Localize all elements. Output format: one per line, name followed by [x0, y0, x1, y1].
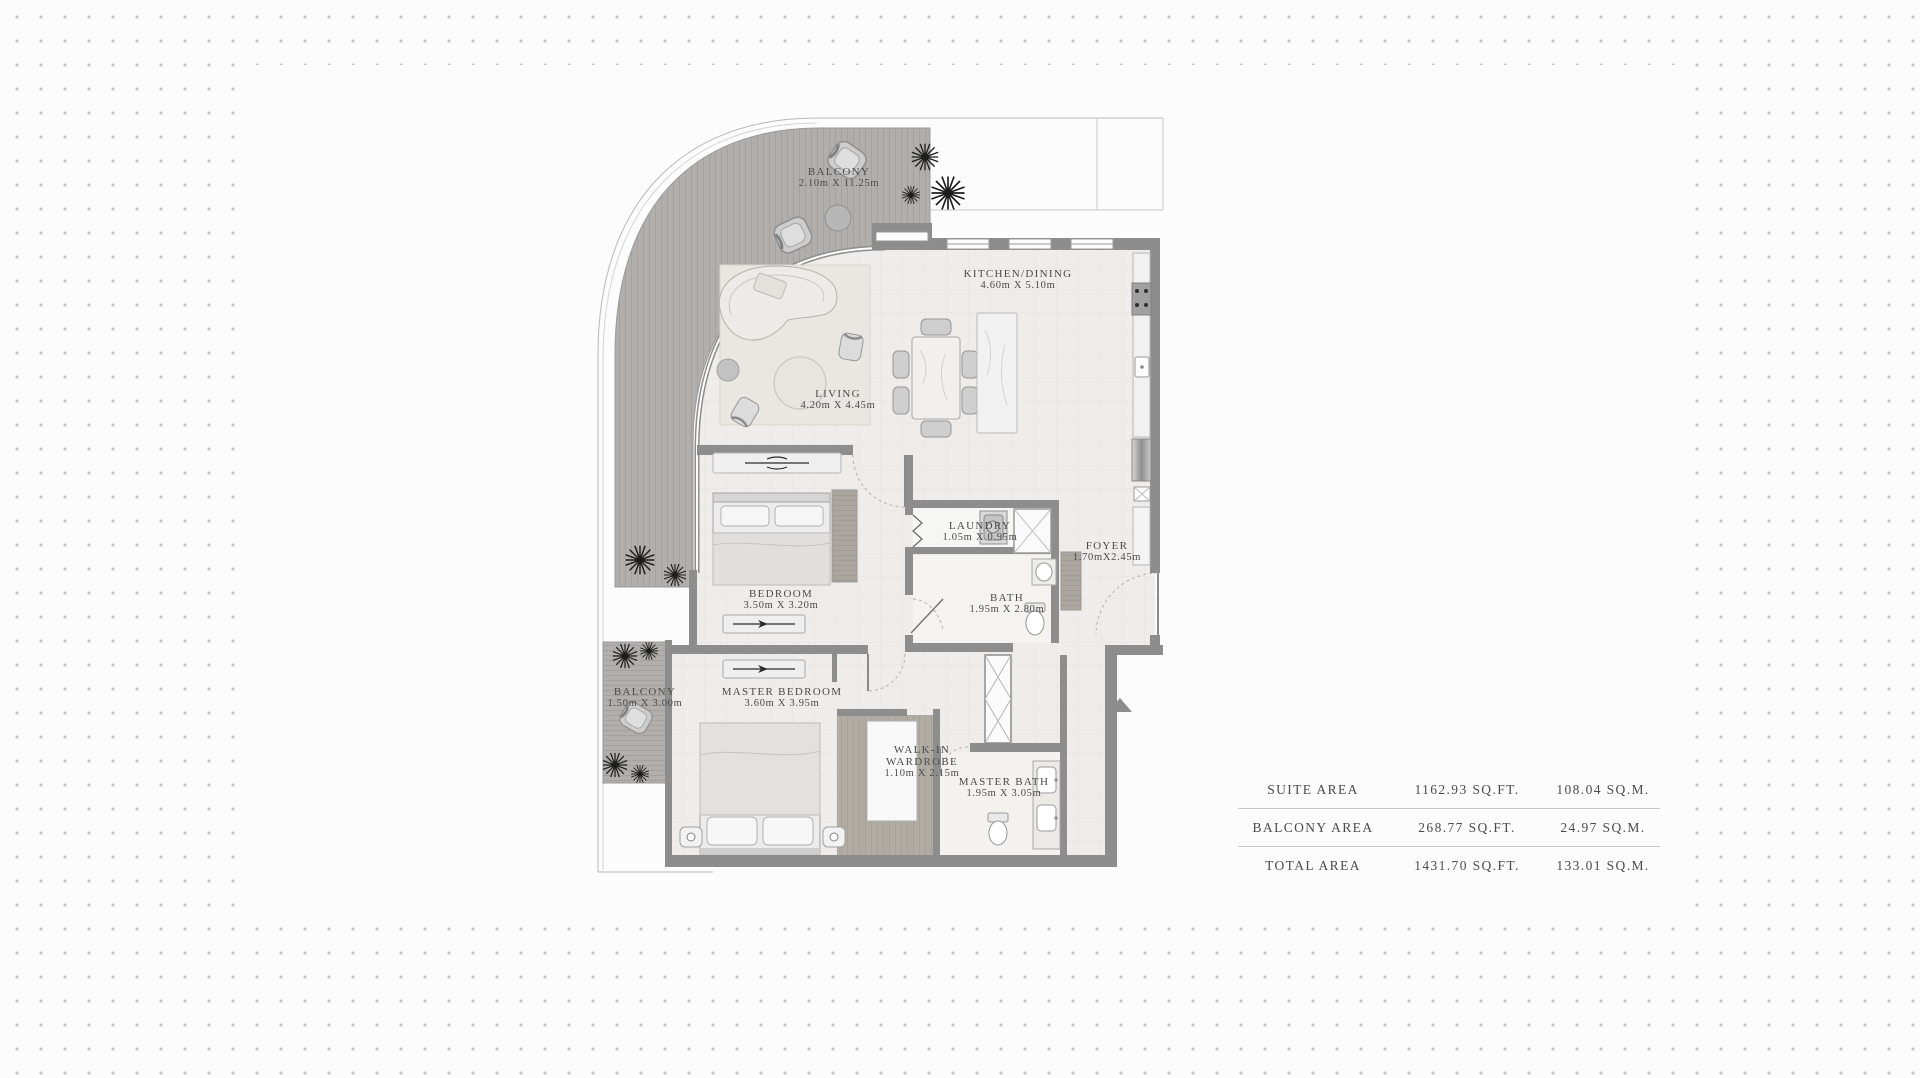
foyer-closet [1061, 552, 1081, 610]
plant-icon [932, 177, 965, 210]
table-row-suite-area: SUITE AREA 1162.93 SQ.FT. 108.04 SQ.M. [1238, 771, 1660, 808]
plant-icon [631, 765, 649, 783]
toilet-icon [989, 821, 1007, 845]
dining-chair [893, 351, 909, 378]
sqft-value: 1162.93 SQ.FT. [1388, 782, 1546, 798]
dining-chair [921, 319, 951, 335]
side-table [717, 359, 739, 381]
stove-icon [1132, 283, 1151, 315]
dining-chair [921, 421, 951, 437]
plant-icon [613, 644, 637, 668]
dining-chair [962, 387, 978, 414]
table-row-total-area: TOTAL AREA 1431.70 SQ.FT. 133.01 SQ.M. [1238, 846, 1660, 884]
row-label: TOTAL AREA [1238, 858, 1388, 874]
floor-plan [595, 115, 1170, 875]
sink-icon [1037, 805, 1056, 831]
plant-icon [603, 753, 627, 777]
dining-chair [893, 387, 909, 414]
wardrobe-unit [867, 721, 917, 821]
sqm-value: 108.04 SQ.M. [1546, 782, 1660, 798]
kitchen-counter [1133, 253, 1150, 437]
sqm-value: 133.01 SQ.M. [1546, 858, 1660, 874]
hall-closet [985, 655, 1011, 743]
area-summary-table: SUITE AREA 1162.93 SQ.FT. 108.04 SQ.M. B… [1238, 771, 1660, 884]
blanket [713, 533, 830, 585]
dining-table [912, 337, 960, 419]
dining-chair [962, 351, 978, 378]
sqft-value: 268.77 SQ.FT. [1388, 820, 1546, 836]
pillow [707, 817, 757, 845]
plant-icon [664, 564, 686, 586]
pillow [721, 506, 769, 526]
plant-icon [902, 186, 920, 204]
fridge-icon [1132, 439, 1151, 481]
page: BALCONY 2.10m X 11.25m KITCHEN/DINING 4.… [0, 0, 1920, 1078]
side-table [825, 205, 851, 231]
plant-icon [912, 144, 938, 170]
row-label: BALCONY AREA [1238, 820, 1388, 836]
plant-icon [626, 546, 655, 575]
bedroom-wardrobe [832, 490, 857, 582]
row-label: SUITE AREA [1238, 782, 1388, 798]
balcony-slider-door [876, 232, 928, 241]
plant-icon [640, 642, 658, 660]
pillow [775, 506, 823, 526]
kitchen-island [977, 313, 1017, 433]
sqft-value: 1431.70 SQ.FT. [1388, 858, 1546, 874]
sqm-value: 24.97 SQ.M. [1546, 820, 1660, 836]
headboard [713, 493, 830, 502]
sink-icon [1036, 563, 1052, 581]
pillow [763, 817, 813, 845]
table-row-balcony-area: BALCONY AREA 268.77 SQ.FT. 24.97 SQ.M. [1238, 808, 1660, 846]
sink-icon [1037, 767, 1056, 793]
blanket [700, 723, 820, 815]
round-rug [774, 357, 826, 409]
toilet-icon [1026, 611, 1044, 635]
